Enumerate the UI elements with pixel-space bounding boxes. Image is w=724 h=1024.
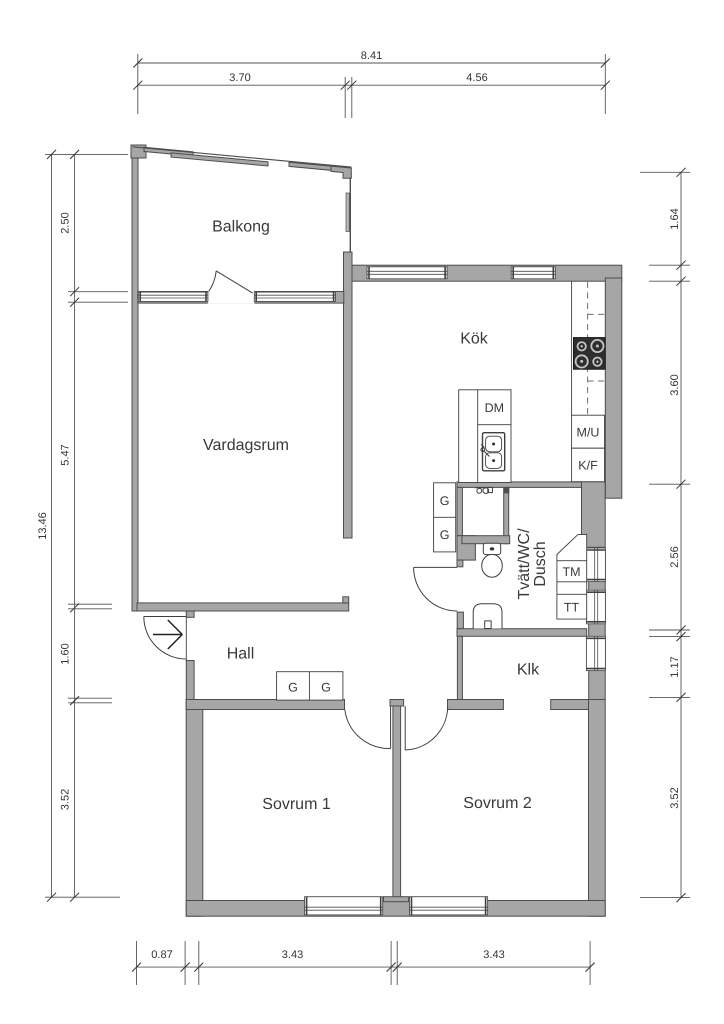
svg-text:13.46: 13.46 [37, 512, 49, 540]
svg-text:3.70: 3.70 [229, 72, 250, 84]
svg-text:4.56: 4.56 [466, 72, 487, 84]
svg-text:3.43: 3.43 [282, 949, 303, 961]
svg-text:Sovrum 2: Sovrum 2 [463, 795, 532, 812]
svg-text:Klk: Klk [517, 662, 540, 679]
svg-text:Sovrum 1: Sovrum 1 [262, 796, 331, 813]
svg-text:3.52: 3.52 [669, 787, 681, 808]
svg-text:G: G [440, 494, 450, 508]
svg-text:DM: DM [485, 401, 504, 415]
svg-text:1.60: 1.60 [60, 643, 72, 664]
svg-text:2.50: 2.50 [60, 212, 72, 233]
svg-text:Kök: Kök [460, 331, 489, 348]
svg-text:5.47: 5.47 [60, 444, 72, 465]
svg-text:G: G [440, 528, 450, 542]
svg-text:G: G [288, 681, 298, 695]
svg-text:TT: TT [564, 601, 580, 615]
svg-text:Balkong: Balkong [212, 219, 270, 236]
svg-text:2.56: 2.56 [669, 546, 681, 567]
svg-text:3.43: 3.43 [483, 949, 504, 961]
svg-text:1.17: 1.17 [669, 656, 681, 677]
svg-text:8.41: 8.41 [361, 50, 382, 62]
svg-text:K/F: K/F [578, 459, 598, 473]
svg-text:Vardagsrum: Vardagsrum [203, 437, 289, 454]
svg-text:1.64: 1.64 [669, 208, 681, 229]
svg-text:TM: TM [562, 565, 580, 579]
svg-text:M/U: M/U [577, 426, 600, 440]
svg-text:G: G [321, 681, 331, 695]
svg-text:Hall: Hall [227, 646, 255, 663]
svg-text:3.60: 3.60 [669, 374, 681, 395]
svg-text:0.87: 0.87 [151, 949, 172, 961]
svg-text:3.52: 3.52 [60, 789, 72, 810]
